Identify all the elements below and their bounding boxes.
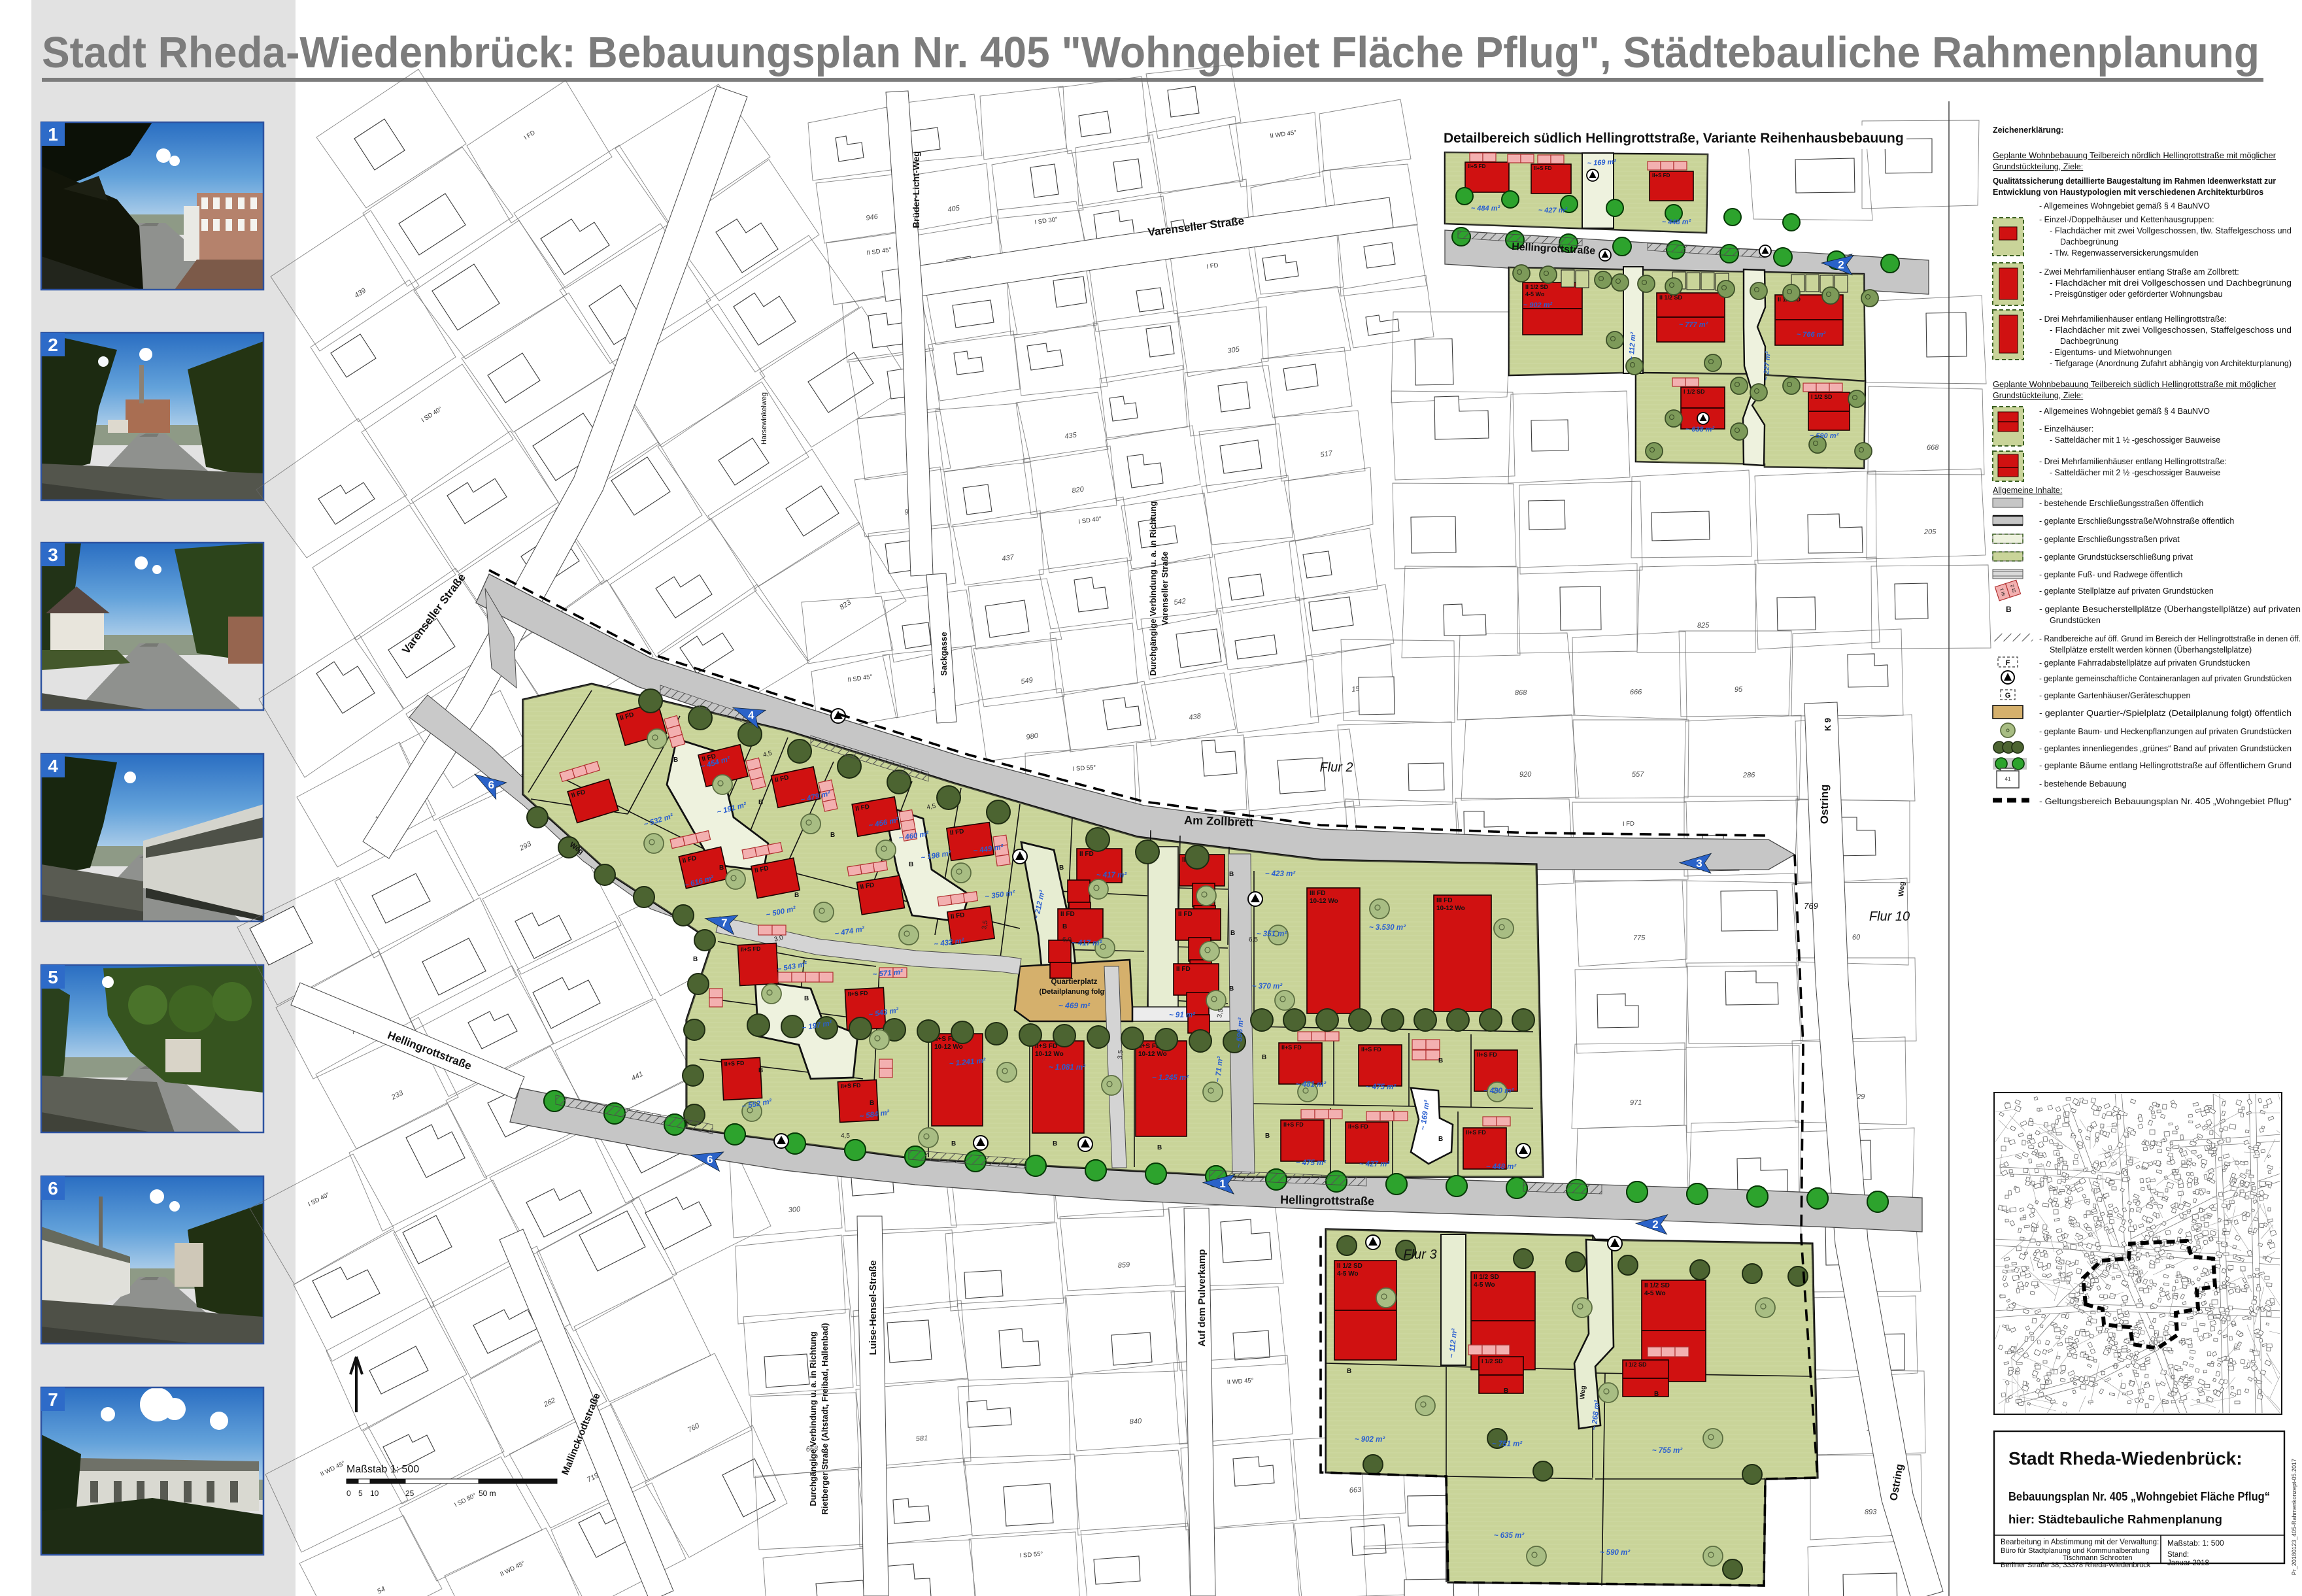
svg-text:Pr_20180123_405-Rahmenkonzept-: Pr_20180123_405-Rahmenkonzept-05.2017 [2291, 1459, 2297, 1575]
svg-text:G: G [2005, 692, 2011, 700]
svg-text:0: 0 [347, 1489, 351, 1498]
svg-text:III FD: III FD [1436, 897, 1452, 904]
svg-text:4-5 Wo: 4-5 Wo [1644, 1290, 1666, 1297]
svg-text:2: 2 [1652, 1218, 1658, 1231]
svg-text:557: 557 [1632, 771, 1644, 779]
svg-text:Quartierplatz: Quartierplatz [1051, 978, 1098, 986]
svg-text:7: 7 [721, 917, 727, 929]
svg-text:- geplante Erschließungsstra: - geplante Erschließungsstraße/Wohnstraß… [2039, 517, 2234, 526]
svg-text:B: B [1062, 923, 1067, 930]
svg-text:775: 775 [1633, 934, 1646, 942]
svg-text:- Allgemeines Wohngebiet gem: - Allgemeines Wohngebiet gemäß § 4 BauNV… [2039, 201, 2210, 211]
svg-text:~ 1.245 m²: ~ 1.245 m² [1152, 1074, 1189, 1082]
svg-text:B: B [1230, 930, 1235, 937]
svg-text:542: 542 [1174, 598, 1187, 607]
svg-text:(Detailplanung folgt): (Detailplanung folgt) [1040, 988, 1109, 996]
svg-text:769: 769 [1804, 901, 1818, 911]
svg-text:1: 1 [1219, 1178, 1225, 1190]
svg-text:1: 1 [48, 124, 58, 144]
svg-text:- Flachdächer mit zwei Vollg: - Flachdächer mit zwei Vollgeschossen, t… [2050, 226, 2292, 235]
svg-text:~ 427 m²: ~ 427 m² [1359, 1161, 1391, 1168]
svg-text:~ 777 m²: ~ 777 m² [1679, 321, 1708, 329]
svg-text:B: B [1438, 1057, 1443, 1064]
svg-text:205: 205 [1923, 528, 1937, 536]
svg-text:II+S FD: II+S FD [1035, 1043, 1057, 1050]
svg-text:- geplante Grundstückserschl: - geplante Grundstückserschließung priva… [2039, 552, 2193, 562]
svg-text:6: 6 [707, 1153, 713, 1166]
svg-text:Ostring: Ostring [1818, 785, 1831, 824]
svg-text:II 1/2 SD: II 1/2 SD [1644, 1282, 1670, 1289]
svg-text:Grundstücken: Grundstücken [2050, 616, 2101, 625]
svg-text:3: 3 [1696, 857, 1702, 870]
svg-text:II+S FD: II+S FD [841, 1082, 862, 1090]
svg-text:Hellingrottstraße: Hellingrottstraße [1280, 1193, 1374, 1208]
svg-text:I 1/2 SD: I 1/2 SD [1684, 388, 1705, 395]
svg-text:~ 590 m²: ~ 590 m² [1810, 432, 1839, 440]
svg-text:60: 60 [1852, 934, 1861, 942]
svg-text:II+S FD: II+S FD [1534, 165, 1552, 171]
svg-text:B: B [1157, 1144, 1162, 1151]
svg-text:~ 902 m²: ~ 902 m² [1523, 301, 1553, 309]
svg-text:II+S FD: II+S FD [741, 945, 762, 953]
svg-text:- Satteldächer mit 1 ½ -gesc: - Satteldächer mit 1 ½ -geschossiger Bau… [2050, 435, 2220, 445]
svg-text:B: B [804, 995, 809, 1002]
svg-text:Luise-Hensel-Straße: Luise-Hensel-Straße [868, 1260, 879, 1355]
svg-text:- Einzel-/Doppelhäuser und K: - Einzel-/Doppelhäuser und Kettenhausgru… [2039, 215, 2214, 224]
svg-text:~ 91 m²: ~ 91 m² [1169, 1011, 1196, 1019]
svg-text:Detailbereich südlich Hellingr: Detailbereich südlich Hellingrottstraße,… [1444, 131, 1904, 146]
svg-text:3,5: 3,5 [1117, 1049, 1125, 1059]
svg-text:II FD: II FD [1060, 911, 1075, 918]
svg-text:Bebauungsplan Nr. 405 „Wohngeb: Bebauungsplan Nr. 405 „Wohngebiet Fläche… [2008, 1489, 2270, 1503]
svg-text:- bestehende Erschließungsst: - bestehende Erschließungsstraßen öffent… [2039, 499, 2203, 508]
svg-text:- Tiefgarage (Anordnung Zufa: - Tiefgarage (Anordnung Zufahrt abhängig… [2050, 359, 2292, 368]
svg-text:Entwicklung von Haustypologien: Entwicklung von Haustypologien mit versc… [1993, 188, 2263, 197]
svg-text:- geplante Erschließungsstra: - geplante Erschließungsstraßen privat [2039, 535, 2180, 544]
svg-text:Grundstückteilung, Ziele:: Grundstückteilung, Ziele: [1993, 391, 2083, 400]
svg-text:10: 10 [370, 1489, 379, 1498]
svg-text:B: B [758, 1067, 763, 1074]
svg-text:~ 475 m²: ~ 475 m² [1296, 1159, 1327, 1167]
svg-text:- Flachdächer mit drei Vollg: - Flachdächer mit drei Vollgeschossen un… [2050, 279, 2292, 288]
svg-text:Bearbeitung in Abstimmung mit: Bearbeitung in Abstimmung mit der Verwal… [2001, 1538, 2159, 1546]
svg-text:B: B [870, 1100, 874, 1107]
svg-text:~ 638 m²: ~ 638 m² [1685, 426, 1715, 433]
svg-text:Geplante Wohnbebauung Teilbere: Geplante Wohnbebauung Teilbereich nördli… [1993, 151, 2276, 160]
svg-text:- Drei Mehrfamilienhäuser en: - Drei Mehrfamilienhäuser entlang Hellin… [2039, 457, 2227, 466]
svg-text:Varenseller Straße: Varenseller Straße [1160, 551, 1170, 625]
svg-text:~ 370 m²: ~ 370 m² [1252, 983, 1283, 991]
svg-text:6,0: 6,0 [1062, 936, 1072, 943]
svg-text:668: 668 [1927, 444, 1939, 452]
svg-text:B: B [1654, 1391, 1659, 1398]
svg-text:B: B [909, 861, 913, 868]
svg-text:Geplante Wohnbebauung Teilbere: Geplante Wohnbebauung Teilbereich südlic… [1993, 380, 2276, 389]
svg-text:Maßstab: 1: 500: Maßstab: 1: 500 [2167, 1538, 2224, 1548]
svg-text:286: 286 [1742, 772, 1755, 779]
svg-text:B: B [1347, 1368, 1351, 1375]
svg-text:- Einzelhäuser:: - Einzelhäuser: [2039, 424, 2093, 433]
svg-text:~ 448 m²: ~ 448 m² [1662, 218, 1691, 226]
svg-text:II+S FD: II+S FD [1361, 1046, 1381, 1053]
svg-text:Flur 3: Flur 3 [1403, 1248, 1436, 1262]
svg-text:II+S FD: II+S FD [848, 990, 869, 998]
svg-text:- Satteldächer mit 2 ½ -gesc: - Satteldächer mit 2 ½ -geschossiger Bau… [2050, 468, 2220, 477]
svg-text:~ 1.081 m²: ~ 1.081 m² [1049, 1064, 1086, 1072]
svg-text:Weg: Weg [1579, 1385, 1587, 1400]
svg-text:6,5: 6,5 [1249, 936, 1258, 943]
svg-text:- Geltungsbereich Bebauungsp: - Geltungsbereich Bebauungsplan Nr. 405 … [2039, 797, 2292, 806]
svg-text:B: B [1265, 1132, 1270, 1140]
svg-text:K 9: K 9 [1823, 718, 1833, 731]
svg-text:25: 25 [405, 1489, 415, 1498]
svg-text:2: 2 [48, 335, 58, 355]
svg-text:Sackgasse: Sackgasse [939, 632, 949, 675]
svg-text:B: B [1504, 1387, 1508, 1395]
svg-text:~ 417 m²: ~ 417 m² [1072, 940, 1103, 947]
svg-text:41: 41 [2005, 776, 2011, 782]
svg-text:~ 169 m²: ~ 169 m² [1587, 158, 1616, 167]
svg-text:- Flachdächer mit zwei Vollg: - Flachdächer mit zwei Vollgeschossen, S… [2050, 326, 2292, 335]
svg-text:- Allgemeines Wohngebiet gem: - Allgemeines Wohngebiet gemäß § 4 BauNV… [2039, 407, 2210, 416]
svg-text:Januar 2018: Januar 2018 [2167, 1559, 2209, 1567]
svg-text:~ 484 m²: ~ 484 m² [1471, 205, 1500, 212]
svg-text:- Zwei Mehrfamilienhäuser en: - Zwei Mehrfamilienhäuser entlang Straße… [2039, 267, 2239, 277]
svg-text:10-12 Wo: 10-12 Wo [1436, 905, 1465, 912]
svg-text:~ 417 m²: ~ 417 m² [1096, 872, 1128, 879]
svg-text:549: 549 [1021, 677, 1034, 686]
svg-text:- geplante Fahrradabstellplä: - geplante Fahrradabstellplätze auf priv… [2039, 658, 2250, 668]
svg-text:~ 448 m²: ~ 448 m² [1486, 1163, 1517, 1171]
svg-text:~ 902 m²: ~ 902 m² [1355, 1436, 1386, 1444]
svg-text:~ 755 m²: ~ 755 m² [1652, 1447, 1684, 1455]
svg-text:7: 7 [48, 1389, 58, 1410]
svg-text:II 1/2 SD: II 1/2 SD [1337, 1263, 1363, 1270]
svg-text:Durchgängige Verbindung u. a.: Durchgängige Verbindung u. a. in Richtun… [1148, 501, 1158, 675]
svg-text:4-5 Wo: 4-5 Wo [1337, 1270, 1359, 1278]
svg-text:10-12 Wo: 10-12 Wo [934, 1044, 963, 1051]
svg-text:II+S FD: II+S FD [1281, 1044, 1302, 1051]
svg-text:Auf dem Pulverkamp: Auf dem Pulverkamp [1196, 1249, 1208, 1346]
svg-text:5: 5 [48, 967, 58, 987]
svg-text:4: 4 [48, 756, 58, 776]
svg-text:B: B [673, 756, 678, 764]
svg-text:II FD: II FD [1178, 911, 1193, 918]
svg-text:Durchgängige Verbindung u. a.: Durchgängige Verbindung u. a. in Richtun… [808, 1331, 818, 1506]
svg-text:2: 2 [1838, 258, 1844, 271]
svg-text:I 1/2 SD: I 1/2 SD [1625, 1361, 1647, 1368]
svg-text:300: 300 [788, 1206, 801, 1214]
svg-text:4: 4 [748, 709, 754, 721]
svg-text:II+S FD: II+S FD [1652, 173, 1670, 178]
svg-text:~ 766 m²: ~ 766 m² [1797, 331, 1826, 339]
svg-text:Stadt Rheda-Wiedenbrück: Bebau: Stadt Rheda-Wiedenbrück: Bebauungsplan N… [42, 28, 2260, 77]
svg-text:859: 859 [1117, 1261, 1130, 1270]
svg-text:III FD: III FD [1310, 890, 1325, 897]
svg-text:Zeichenerklärung:: Zeichenerklärung: [1993, 126, 2063, 135]
svg-text:II+S FD: II+S FD [1348, 1123, 1368, 1130]
svg-text:Berliner Straße 38, 33378 Rhed: Berliner Straße 38, 33378 Rheda-Wiedenbr… [2001, 1561, 2151, 1569]
svg-text:- Eigentums- und Mietwohnung: - Eigentums- und Mietwohnungen [2050, 348, 2172, 357]
svg-text:hier: Städtebauliche Rahmenpla: hier: Städtebauliche Rahmenplanung [2008, 1512, 2222, 1526]
svg-text:~ 427 m²: ~ 427 m² [1538, 207, 1568, 214]
svg-text:B: B [830, 832, 835, 839]
svg-text:Flur 2: Flur 2 [1319, 760, 1353, 775]
svg-text:II 1/2 SD: II 1/2 SD [1659, 294, 1683, 301]
svg-text:- geplante Stellplätze auf p: - geplante Stellplätze auf privaten Grun… [2039, 586, 2214, 596]
svg-text:I FD: I FD [1623, 821, 1634, 828]
svg-text:B: B [1438, 1136, 1443, 1143]
svg-text:50 m: 50 m [479, 1489, 496, 1498]
svg-text:Maßstab 1: 500: Maßstab 1: 500 [347, 1464, 419, 1475]
svg-text:- geplante Gartenhäuser/Gerä: - geplante Gartenhäuser/Geräteschuppen [2039, 691, 2190, 700]
svg-text:B: B [1229, 871, 1234, 878]
svg-text:Allgemeine Inhalte:: Allgemeine Inhalte: [1993, 486, 2062, 495]
svg-text:~ 590 m²: ~ 590 m² [1600, 1549, 1631, 1557]
svg-text:Weg: Weg [1897, 881, 1906, 897]
svg-text:868: 868 [1515, 689, 1527, 697]
svg-text:4-5 Wo: 4-5 Wo [1474, 1282, 1495, 1289]
svg-text:F: F [2006, 659, 2010, 667]
svg-text:Dachbegrünung: Dachbegrünung [2060, 337, 2118, 346]
svg-text:4-5 Wo: 4-5 Wo [1525, 291, 1545, 297]
svg-text:B: B [719, 864, 724, 872]
svg-text:- geplantes innenliegendes „: - geplantes innenliegendes „grünes“ Band… [2039, 744, 2292, 753]
svg-text:~ 351 m²: ~ 351 m² [1257, 930, 1288, 938]
svg-text:- Tlw. Regenwasserversickeru: - Tlw. Regenwasserversickerungsmulden [2050, 248, 2199, 258]
svg-text:10-12 Wo: 10-12 Wo [1138, 1051, 1167, 1058]
svg-text:B: B [1053, 1140, 1057, 1147]
svg-text:5: 5 [358, 1489, 363, 1498]
svg-text:Qualitätssicherung detailliert: Qualitätssicherung detaillierte Baugesta… [1993, 177, 2276, 186]
svg-text:~ 481 m²: ~ 481 m² [1296, 1081, 1327, 1089]
svg-text:I 1/2 SD: I 1/2 SD [1811, 394, 1833, 400]
svg-text:B: B [693, 956, 698, 963]
svg-text:920: 920 [1519, 771, 1532, 779]
svg-text:II FD: II FD [1176, 966, 1191, 973]
svg-text:II 1/2 SD: II 1/2 SD [1474, 1274, 1499, 1281]
svg-text:B: B [2006, 605, 2012, 614]
svg-text:581: 581 [915, 1435, 928, 1443]
svg-text:- geplanter Quartier-/Spielp: - geplanter Quartier-/Spielplatz (Detail… [2039, 709, 2292, 718]
svg-text:~ 3.530 m²: ~ 3.530 m² [1369, 924, 1406, 932]
svg-text:3: 3 [48, 545, 58, 565]
svg-text:B: B [951, 1140, 956, 1147]
svg-text:~ 423 m²: ~ 423 m² [1265, 870, 1296, 878]
svg-text:~ 475 m²: ~ 475 m² [1366, 1083, 1397, 1091]
svg-text:Grundstückteilung, Ziele:: Grundstückteilung, Ziele: [1993, 162, 2083, 171]
svg-text:Brüder-Licht-Weg: Brüder-Licht-Weg [911, 151, 921, 228]
svg-text:840: 840 [1129, 1418, 1142, 1426]
svg-text:Dachbegrünung: Dachbegrünung [2060, 237, 2118, 246]
svg-text:~ 480 m²: ~ 480 m² [1483, 1087, 1515, 1095]
svg-text:Flur 10: Flur 10 [1869, 909, 1910, 924]
svg-text:663: 663 [1349, 1486, 1362, 1495]
svg-text:- geplante Baum- und Heckenp: - geplante Baum- und Heckenpflanzungen a… [2039, 727, 2292, 736]
svg-text:Stand:: Stand: [2167, 1551, 2189, 1559]
svg-text:10-12 Wo: 10-12 Wo [1035, 1051, 1064, 1058]
svg-text:- bestehende Bebauung: - bestehende Bebauung [2039, 779, 2126, 789]
svg-text:B: B [1229, 985, 1234, 993]
svg-text:II+S FD: II+S FD [1477, 1051, 1497, 1058]
svg-text:Stellplätze erstellt werden kö: Stellplätze erstellt werden können (Über… [2050, 645, 2252, 654]
svg-text:4,5: 4,5 [841, 1132, 850, 1140]
svg-text:B: B [794, 892, 799, 899]
svg-text:~ 469 m²: ~ 469 m² [1058, 1001, 1091, 1010]
svg-text:Harsewinkelweg: Harsewinkelweg [760, 392, 768, 445]
svg-text:6: 6 [488, 779, 494, 791]
svg-text:893: 893 [1865, 1508, 1877, 1516]
svg-text:971: 971 [1630, 1099, 1642, 1107]
svg-text:825: 825 [1697, 622, 1710, 630]
svg-text:666: 666 [1630, 688, 1642, 696]
svg-text:Stadt Rheda-Wiedenbrück:: Stadt Rheda-Wiedenbrück: [2008, 1448, 2243, 1469]
svg-text:II 1/2 SD: II 1/2 SD [1525, 284, 1549, 290]
svg-text:95: 95 [1735, 686, 1743, 694]
svg-text:- Randbereiche auf öff. Grun: - Randbereiche auf öff. Grund im Bereich… [2039, 634, 2301, 643]
svg-text:- geplante Bäume entlang Hel: - geplante Bäume entlang Hellingrottstra… [2039, 761, 2292, 770]
svg-text:Rietberger Straße (Altstadt, F: Rietberger Straße (Altstadt, Freibad, Ha… [820, 1323, 830, 1514]
svg-text:II+S FD: II+S FD [724, 1060, 745, 1068]
svg-text:II+S FD: II+S FD [1283, 1121, 1304, 1128]
svg-text:- geplante gemeinschaftliche: - geplante gemeinschaftliche Containeran… [2039, 674, 2292, 683]
svg-text:- Preisgünstiger oder geförd: - Preisgünstiger oder geförderter Wohnun… [2050, 290, 2223, 299]
svg-text:~ 635 m²: ~ 635 m² [1494, 1532, 1525, 1540]
svg-text:~ 751 m²: ~ 751 m² [1492, 1440, 1523, 1448]
svg-text:I 1/2 SD: I 1/2 SD [1481, 1358, 1503, 1365]
svg-text:- geplante Besucherstellplät: - geplante Besucherstellplätze (Überhang… [2039, 605, 2301, 614]
svg-text:II FD: II FD [1079, 851, 1094, 858]
svg-text:B: B [1262, 1054, 1266, 1061]
svg-text:II+S FD: II+S FD [1466, 1129, 1486, 1136]
svg-text:- Drei Mehrfamilienhäuser en: - Drei Mehrfamilienhäuser entlang Hellin… [2039, 314, 2227, 324]
svg-text:6: 6 [48, 1178, 58, 1198]
svg-text:B: B [1059, 864, 1064, 872]
svg-text:II+S FD: II+S FD [1468, 163, 1486, 169]
svg-text:- geplante Fuß- und Radwege: - geplante Fuß- und Radwege öffentlich [2039, 570, 2182, 579]
svg-text:10-12 Wo: 10-12 Wo [1310, 898, 1338, 905]
svg-text:B: B [758, 799, 763, 806]
